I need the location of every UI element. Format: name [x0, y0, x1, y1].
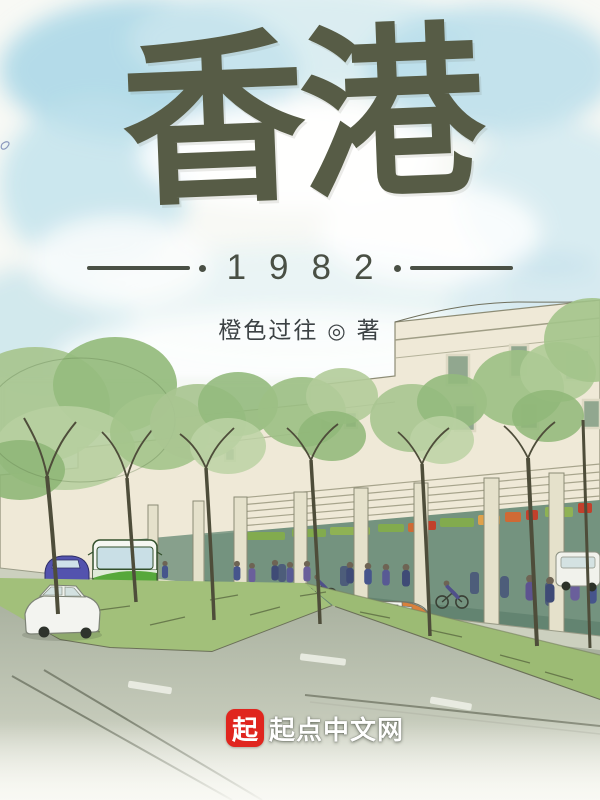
book-cover: 香港 1982 橙色过往◎著 起 起点中文网 — [0, 0, 600, 800]
author-name: 橙色过往 — [218, 317, 318, 343]
author-separator-icon: ◎ — [327, 320, 347, 343]
year-rule-right — [410, 266, 513, 270]
author-line: 橙色过往◎著 — [0, 311, 600, 345]
book-title: 香港 — [0, 11, 600, 227]
year-rule-left — [87, 266, 190, 270]
publisher-logo: 起 起点中文网 — [226, 709, 404, 747]
year-row: 1982 — [0, 248, 600, 288]
author-role: 著 — [357, 317, 382, 343]
book-year: 1982 — [227, 248, 397, 288]
white-van — [556, 552, 600, 592]
year-dot-left — [199, 265, 206, 272]
qidian-logo-icon: 起 — [226, 709, 264, 747]
publisher-name: 起点中文网 — [269, 710, 404, 747]
year-dot-right — [394, 265, 401, 272]
